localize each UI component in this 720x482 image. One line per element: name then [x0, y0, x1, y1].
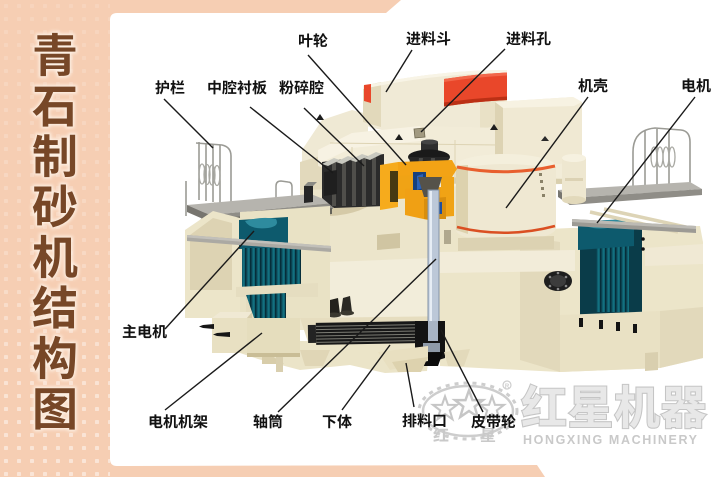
svg-text:HONGXING MACHINERY: HONGXING MACHINERY — [523, 433, 699, 447]
svg-text:R: R — [505, 384, 510, 390]
